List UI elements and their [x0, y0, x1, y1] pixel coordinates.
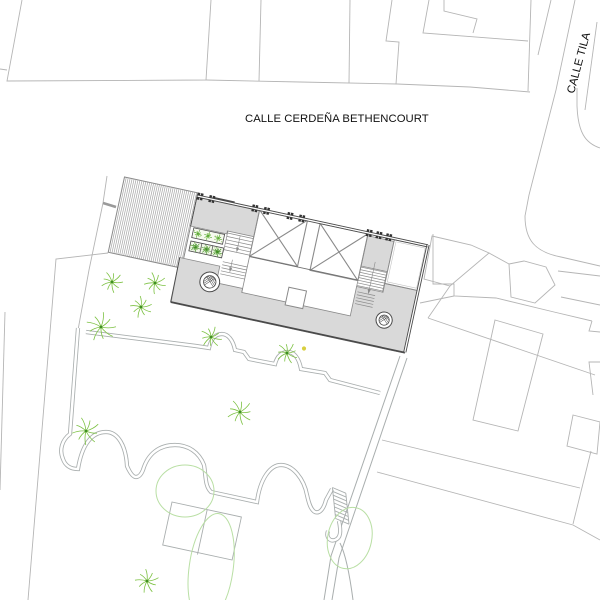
svg-text:CALLE CERDEÑA BETHENCOURT: CALLE CERDEÑA BETHENCOURT: [245, 112, 429, 125]
